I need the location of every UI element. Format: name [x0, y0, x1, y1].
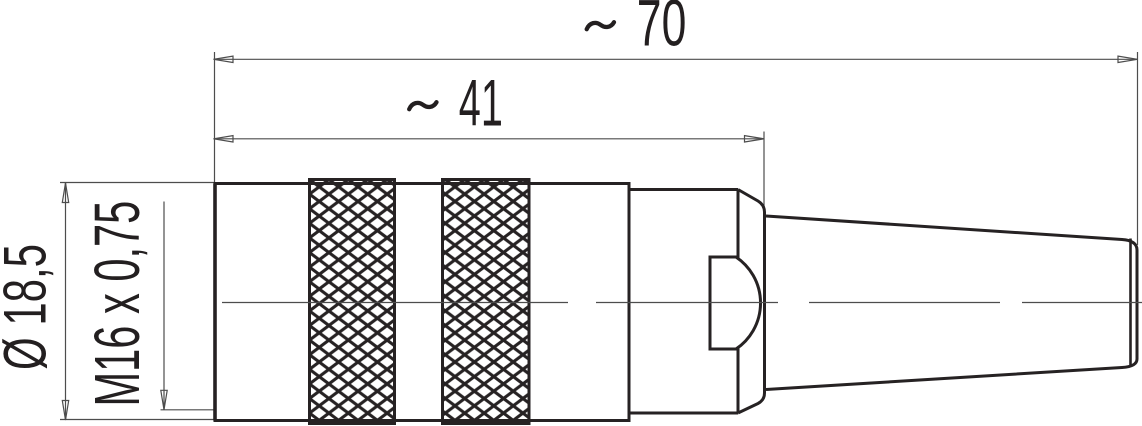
- svg-text:Ø 18,5: Ø 18,5: [0, 244, 58, 370]
- svg-text:41: 41: [459, 66, 503, 140]
- svg-text:70: 70: [637, 0, 687, 60]
- svg-text:M16 x 0,75: M16 x 0,75: [82, 201, 153, 407]
